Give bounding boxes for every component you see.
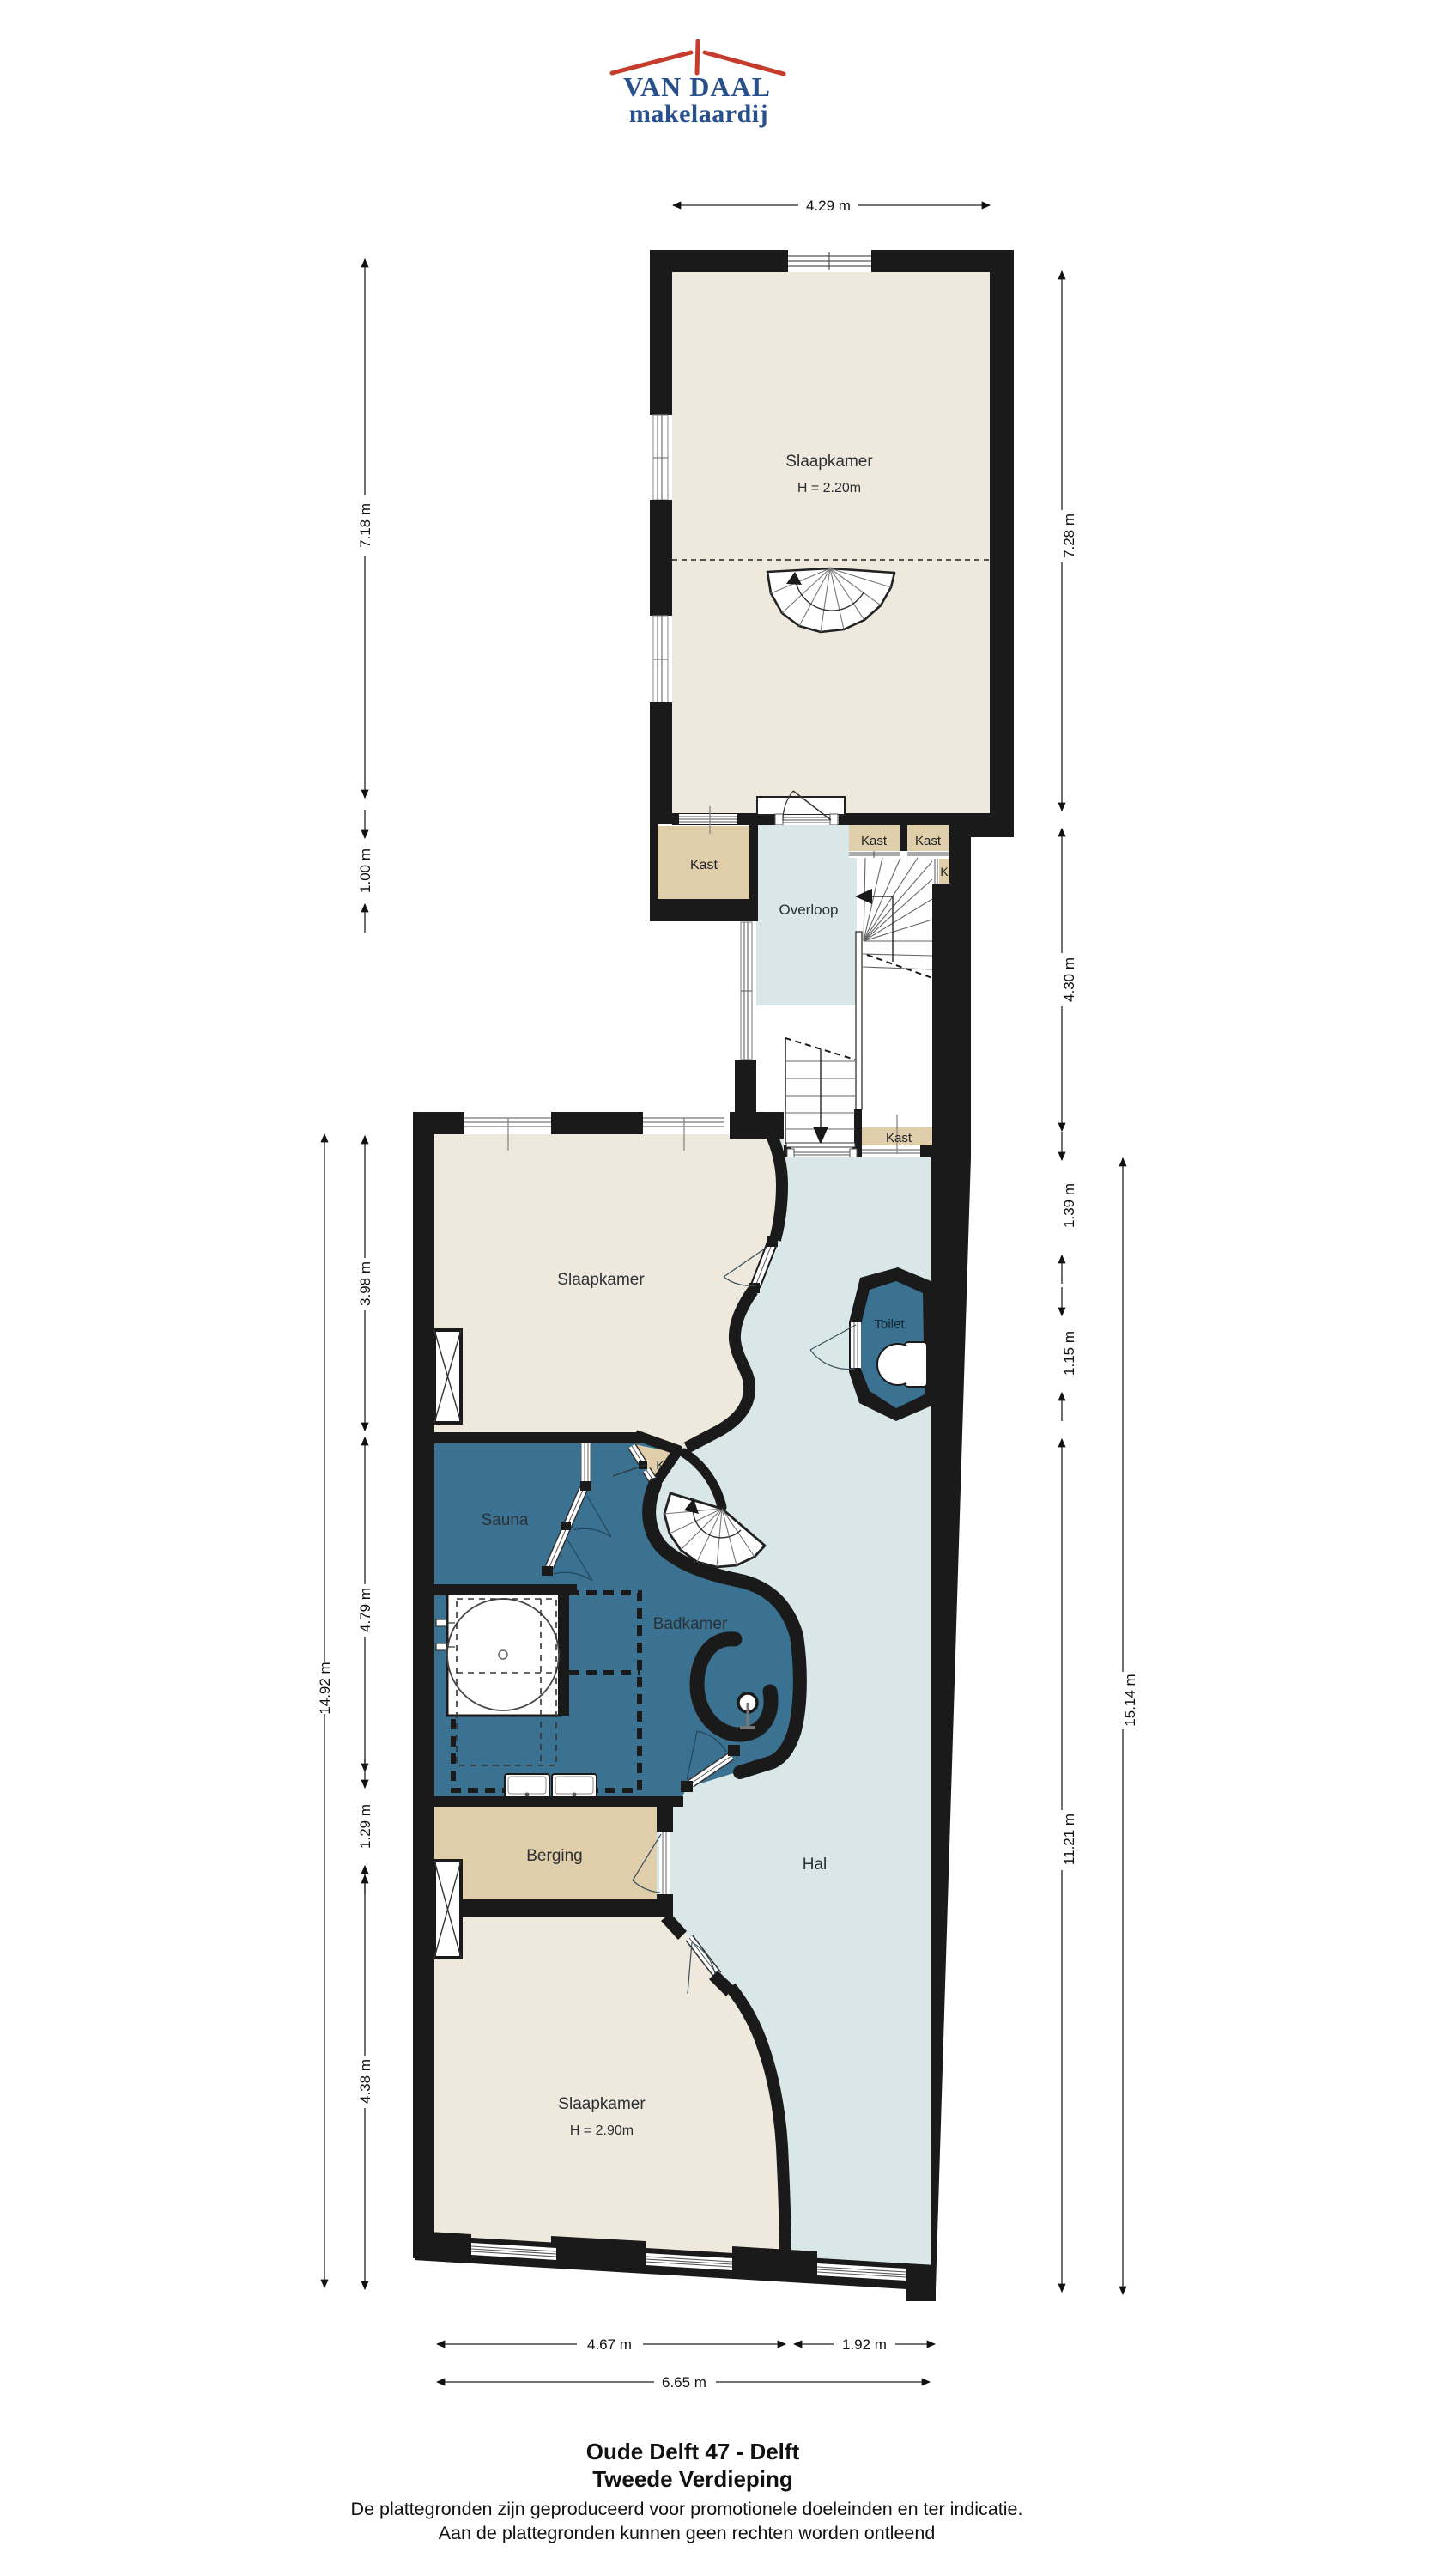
svg-text:makelaardij: makelaardij [629,100,768,128]
svg-text:Berging: Berging [526,1847,583,1865]
svg-text:1.39 m: 1.39 m [1061,1183,1077,1228]
svg-text:Slaapkamer: Slaapkamer [558,2095,646,2113]
svg-text:Oude Delft 47 - Delft: Oude Delft 47 - Delft [586,2439,800,2464]
svg-text:4.30 m: 4.30 m [1061,957,1077,1002]
svg-text:Tweede Verdieping: Tweede Verdieping [592,2466,793,2492]
svg-text:Kast: Kast [915,834,942,848]
svg-text:H = 2.20m: H = 2.20m [797,481,861,495]
svg-text:7.28 m: 7.28 m [1061,513,1077,558]
svg-text:Slaapkamer: Slaapkamer [557,1271,645,1289]
svg-text:11.21 m: 11.21 m [1061,1814,1077,1865]
svg-text:4.29 m: 4.29 m [806,197,851,214]
svg-text:Toilet: Toilet [874,1317,905,1332]
svg-text:Badkamer: Badkamer [653,1615,728,1633]
svg-text:4.38 m: 4.38 m [357,2059,373,2104]
svg-text:4.79 m: 4.79 m [357,1588,373,1632]
svg-text:Kast: Kast [861,834,888,848]
svg-text:K: K [656,1458,664,1472]
svg-text:VAN DAAL: VAN DAAL [623,71,771,102]
svg-text:14.92 m: 14.92 m [317,1662,333,1714]
svg-text:De plattegronden zijn geproduc: De plattegronden zijn geproduceerd voor … [351,2499,1023,2519]
svg-text:Hal: Hal [803,1856,828,1874]
svg-text:1.00 m: 1.00 m [357,848,373,893]
svg-text:Overloop: Overloop [779,902,839,918]
svg-text:Sauna: Sauna [482,1511,529,1529]
svg-text:1.29 m: 1.29 m [357,1804,373,1849]
svg-text:Kast: Kast [886,1131,912,1145]
svg-text:15.14 m: 15.14 m [1122,1674,1138,1726]
svg-text:7.18 m: 7.18 m [357,503,373,548]
svg-text:3.98 m: 3.98 m [357,1261,373,1306]
svg-text:4.67 m: 4.67 m [587,2336,632,2353]
svg-text:6.65 m: 6.65 m [662,2374,706,2391]
svg-text:Kast: Kast [690,858,718,872]
svg-text:1.92 m: 1.92 m [842,2336,887,2353]
svg-text:Slaapkamer: Slaapkamer [785,453,873,471]
svg-text:K: K [940,865,949,878]
svg-text:Aan de plattegronden kunnen ge: Aan de plattegronden kunnen geen rechten… [439,2523,936,2543]
svg-text:H = 2.90m: H = 2.90m [570,2123,634,2138]
svg-text:1.15 m: 1.15 m [1061,1331,1077,1376]
